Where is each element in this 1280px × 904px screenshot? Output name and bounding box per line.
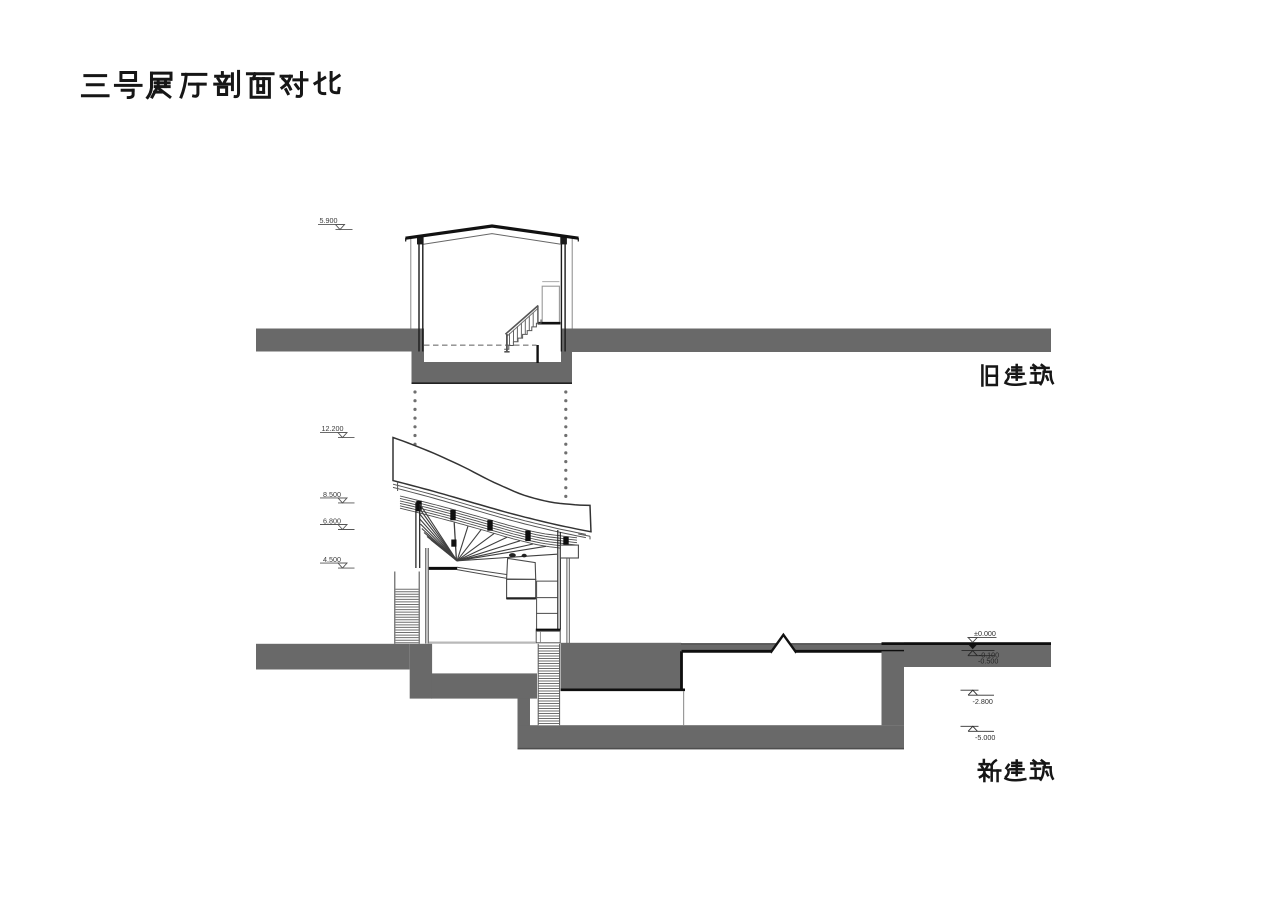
- svg-text:-5.000: -5.000: [975, 733, 995, 742]
- svg-text:4.500: 4.500: [323, 555, 341, 564]
- svg-text:-0.500: -0.500: [978, 657, 998, 666]
- svg-text:-2.800: -2.800: [973, 697, 993, 706]
- svg-text:6.800: 6.800: [323, 516, 341, 525]
- svg-text:5.900: 5.900: [320, 216, 338, 225]
- svg-text:12.200: 12.200: [322, 424, 344, 433]
- svg-text:±0.000: ±0.000: [974, 629, 996, 638]
